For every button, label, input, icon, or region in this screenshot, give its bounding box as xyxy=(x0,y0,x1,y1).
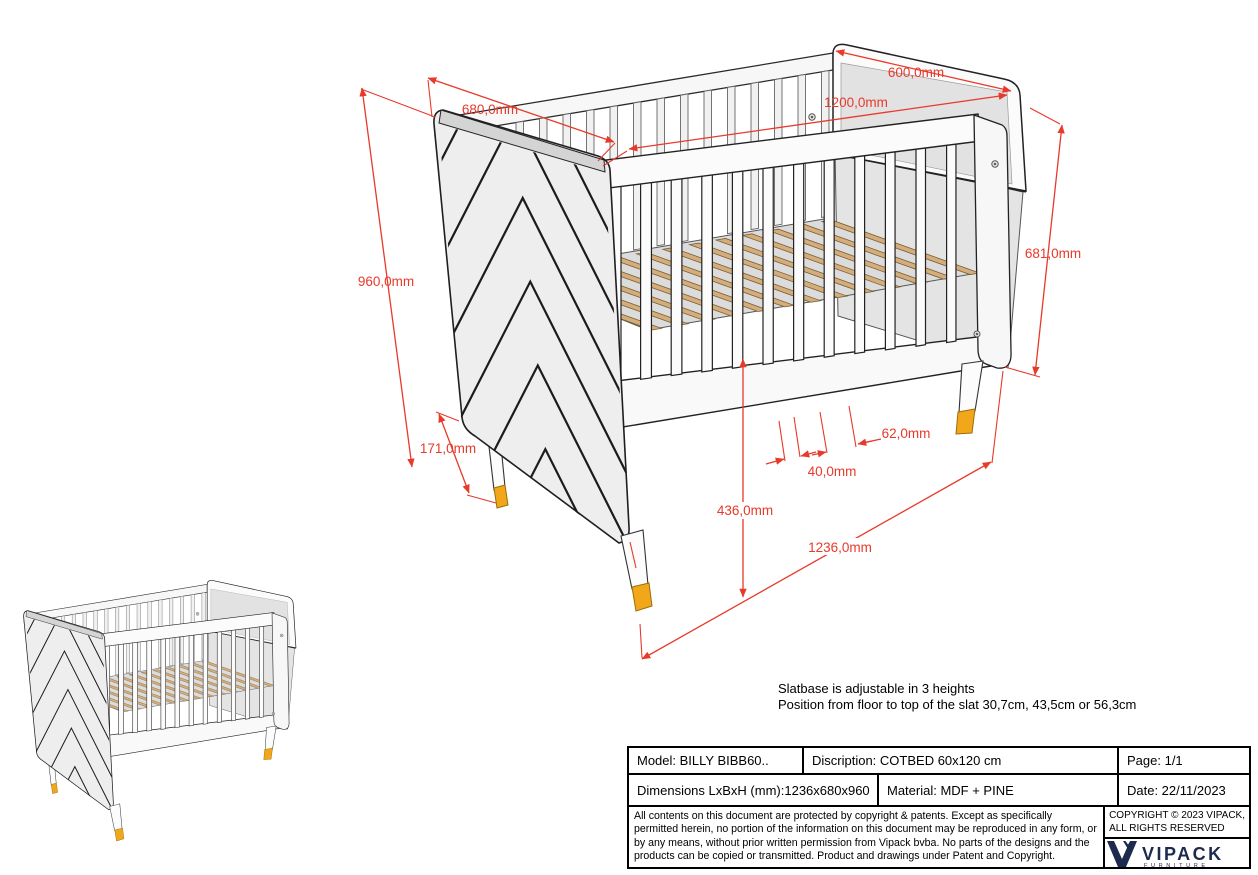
slatbase-notes: Slatbase is adjustable in 3 heights Posi… xyxy=(778,681,1136,712)
right-end-front-edge xyxy=(974,115,1011,368)
dim-label-62: 62,0mm xyxy=(882,426,931,441)
dim-label-680: 680,0mm xyxy=(462,102,518,117)
vipack-logo: VIPACK FURNITURE xyxy=(1107,840,1235,868)
front-right-leg xyxy=(959,361,983,413)
note-line-1: Slatbase is adjustable in 3 heights xyxy=(778,681,1136,697)
cot-isometric-view xyxy=(413,0,1026,781)
brand-name: VIPACK xyxy=(1142,844,1224,864)
description-cell: Discription: COTBED 60x120 cm xyxy=(804,748,1119,775)
front-slat xyxy=(671,177,682,375)
front-slat xyxy=(702,174,713,372)
front-right-leg-tip xyxy=(956,409,975,434)
cot-thumbnail-view xyxy=(14,536,296,875)
dim-leader-62 xyxy=(858,439,881,444)
vipack-logo-mark-icon xyxy=(1107,841,1137,867)
front-slat xyxy=(763,166,773,365)
front-slat xyxy=(885,150,895,350)
front-slat xyxy=(824,158,834,357)
dim-label-436: 436,0mm xyxy=(717,503,773,518)
material-cell: Material: MDF + PINE xyxy=(879,775,1119,807)
legal-text: All contents on this document are protec… xyxy=(629,807,1105,868)
copyright-cell: COPYRIGHT © 2023 VIPACK, ALL RIGHTS RESE… xyxy=(1105,807,1249,839)
brand-logo: VIPACK FURNITURE xyxy=(1105,839,1249,868)
dim-label-171: 171,0mm xyxy=(420,441,476,456)
brand-subtitle: FURNITURE xyxy=(1144,863,1209,868)
front-left-leg-tip xyxy=(632,583,652,611)
legal-line-1: All contents on this document are protec… xyxy=(634,810,1052,822)
dim-label-1200: 1200,0mm xyxy=(824,95,888,110)
dim-line-1236 xyxy=(642,462,991,659)
technical-drawing-page: 680,0mm 960,0mm 600,0mm 1200,0mm 681,0mm… xyxy=(0,0,1258,875)
copyright-line-1: COPYRIGHT © 2023 VIPACK, xyxy=(1109,809,1245,822)
dim-label-40: 40,0mm xyxy=(808,464,857,479)
legal-line-4: products can be copied or transmitted. P… xyxy=(634,850,1055,862)
date-cell: Date: 22/11/2023 xyxy=(1119,775,1249,807)
front-slat xyxy=(855,154,865,353)
dim-label-681: 681,0mm xyxy=(1025,246,1081,261)
dim-label-600: 600,0mm xyxy=(888,65,944,80)
front-slat xyxy=(794,162,804,361)
front-slat xyxy=(947,142,956,342)
dim-label-1236: 1236,0mm xyxy=(808,540,872,555)
legal-line-2: permitted herein, no portion of the info… xyxy=(634,823,1097,835)
model-cell: Model: BILLY BIBB60.. xyxy=(629,748,804,775)
cotbed-drawing: 680,0mm 960,0mm 600,0mm 1200,0mm 681,0mm… xyxy=(0,0,1258,875)
dim-label-960: 960,0mm xyxy=(358,274,414,289)
front-slat xyxy=(916,146,926,346)
front-slat xyxy=(732,170,742,369)
copyright-line-2: ALL RIGHTS RESERVED xyxy=(1109,822,1245,835)
dim-line-40 xyxy=(766,459,784,464)
front-slat xyxy=(641,181,652,379)
page-cell: Page: 1/1 xyxy=(1119,748,1249,775)
legal-line-3: by any means, without prior written perm… xyxy=(634,837,1090,849)
dimensions-cell: Dimensions LxBxH (mm):1236x680x960 xyxy=(629,775,879,807)
title-block: Model: BILLY BIBB60.. Discription: COTBE… xyxy=(627,746,1251,869)
note-line-2: Position from floor to top of the slat 3… xyxy=(778,697,1136,713)
